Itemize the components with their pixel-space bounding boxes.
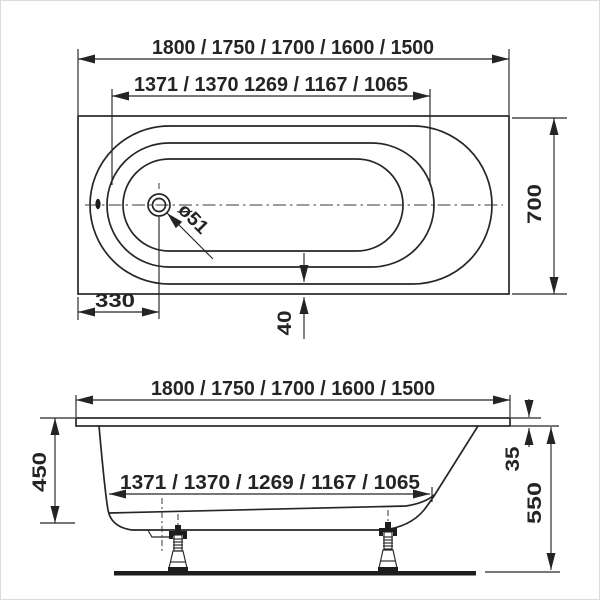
foot-bracket-wing [379,532,383,536]
dim-label-drain-diameter: ø51 [173,200,212,239]
top-view: 1800 / 1750 / 1700 / 1600 / 1500 1371 / … [78,37,567,339]
foot-bracket [169,531,187,535]
dim-label-overall-width: 700 [525,184,546,224]
foot-cone [379,550,397,568]
foot-bracket [379,528,397,532]
dim-label-side-bottom-length: 1371 / 1370 / 1269 / 1167 / 1065 [120,472,420,494]
foot-bracket-wing [169,535,173,539]
foot-pad [168,567,188,572]
dim-label-top-overall-length: 1800 / 1750 / 1700 / 1600 / 1500 [152,37,434,59]
dim-label-rim-thickness: 35 [503,446,524,472]
dim-label-drain-offset: 330 [95,291,135,312]
foot-pad [378,567,398,572]
drawing-canvas: 1800 / 1750 / 1700 / 1600 / 1500 1371 / … [1,1,599,599]
dim-label-depth: 450 [30,452,51,492]
dim-label-underside-height: 550 [525,482,546,524]
overflow-mark [95,199,100,209]
foot-right [378,510,398,572]
foot-stem [174,535,182,551]
foot-screw [175,525,181,531]
dim-label-bottom-edge-offset: 40 [275,311,296,336]
foot-bracket-wing [183,535,187,539]
foot-left [168,514,188,572]
foot-bracket-wing [393,532,397,536]
bathtub-technical-drawing: 1800 / 1750 / 1700 / 1600 / 1500 1371 / … [0,0,600,600]
tub-inner-bottom-line [109,495,434,513]
dim-label-top-bottom-length: 1371 / 1370 1269 / 1167 / 1065 [134,74,408,96]
dim-label-side-overall-length: 1800 / 1750 / 1700 / 1600 / 1500 [151,378,435,400]
foot-cone [169,551,187,568]
rim-profile [76,418,510,426]
side-view: 1800 / 1750 / 1700 / 1600 / 1500 1371 / … [30,378,560,576]
foot-screw [385,522,391,528]
